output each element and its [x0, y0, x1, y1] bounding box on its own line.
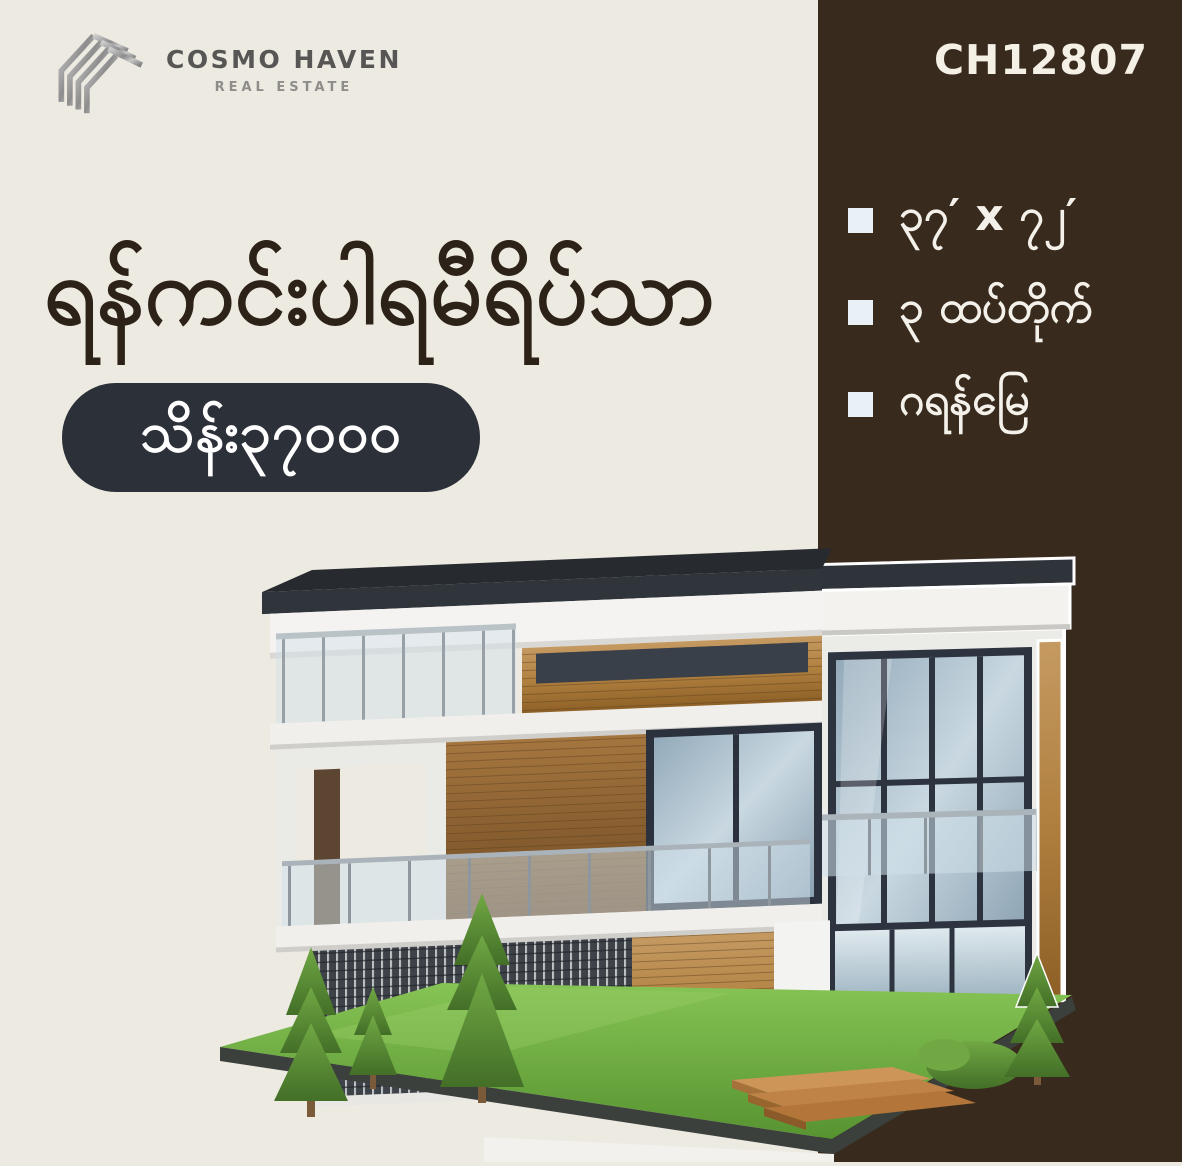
square-bullet-icon	[848, 392, 873, 417]
poster: { "brand": { "name": "COSMO HAVEN", "tag…	[0, 0, 1182, 1162]
feature-label: ဂရန်မြေ	[899, 376, 1029, 424]
wood-column-right	[1038, 640, 1062, 997]
brand-logo: COSMO HAVEN REAL ESTATE	[50, 16, 402, 116]
feature-label: ၃ ထပ်တိုက်	[899, 284, 1093, 332]
feature-land-type: ဂရန်မြေ	[848, 376, 1093, 468]
balcony-rail-right	[804, 814, 1060, 877]
feature-storeys: ၃ ထပ်တိုက်	[848, 284, 1093, 376]
feature-label: ၃၇′ x ၇၂′	[899, 192, 1077, 240]
house-illustration-svg	[192, 495, 1092, 1162]
balcony-rail-top	[276, 629, 516, 723]
features-list: ၃၇′ x ၇၂′ ၃ ထပ်တိုက် ဂရန်မြေ	[848, 192, 1093, 468]
price-badge: သိန်း၃၇၀၀၀	[62, 383, 480, 492]
brand-tagline: REAL ESTATE	[215, 80, 354, 95]
listing-code: CH12807	[934, 36, 1148, 84]
square-bullet-icon	[848, 300, 873, 325]
brand-name: COSMO HAVEN	[166, 45, 402, 74]
price-badge-text: သိန်း၃၇၀၀၀	[140, 397, 402, 479]
house-right-wing	[790, 558, 1074, 1009]
square-bullet-icon	[848, 208, 873, 233]
feature-dimensions: ၃၇′ x ၇၂′	[848, 192, 1093, 284]
house-illustration	[192, 495, 1092, 1162]
page-title: ရန်ကင်းပါရမီရိပ်သာ	[44, 230, 816, 354]
logo-chevron-mark-icon	[50, 16, 154, 116]
